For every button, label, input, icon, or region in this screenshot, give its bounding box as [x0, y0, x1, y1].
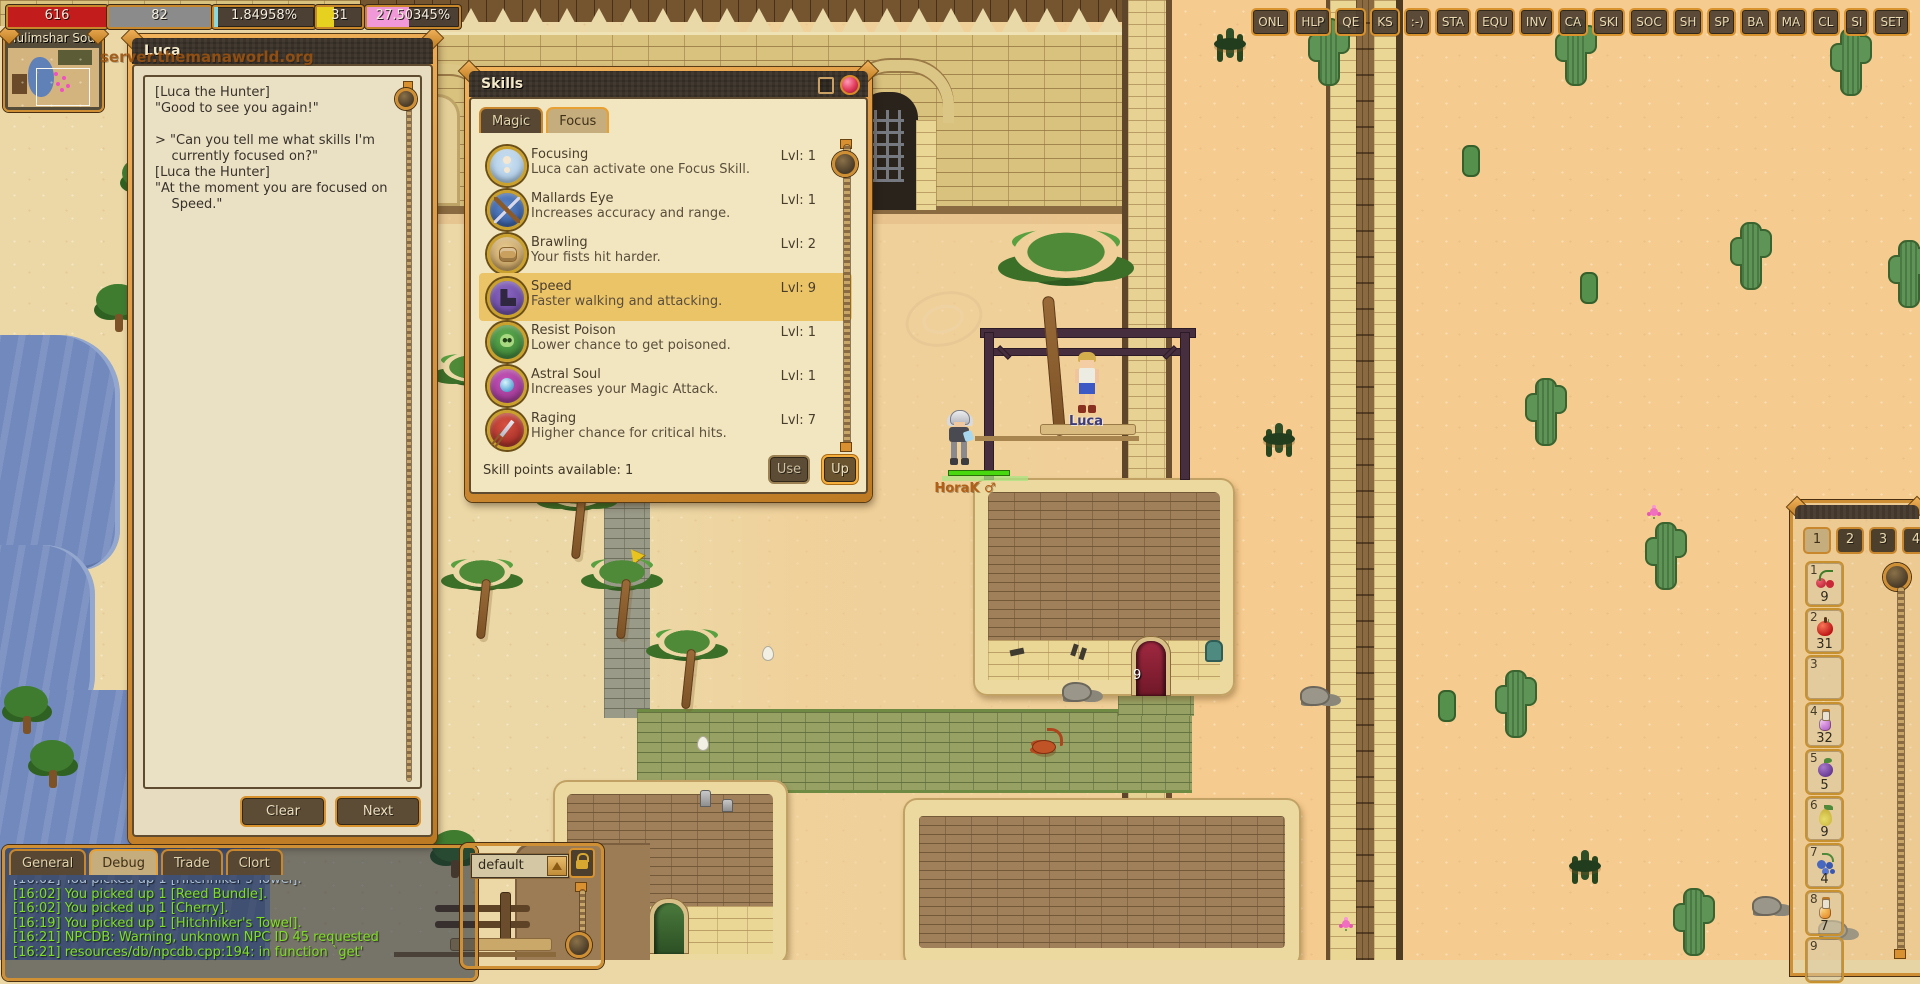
scorpion-monster[interactable] — [1030, 728, 1066, 756]
hp-bar-value: 616 — [8, 7, 106, 27]
resist-poison-icon — [487, 322, 527, 362]
npc-dialog-textarea[interactable]: [Luca the Hunter] "Good to see you again… — [143, 75, 422, 789]
dialog-clear-button[interactable]: Clear — [240, 796, 326, 827]
shortcut-slot-5[interactable]: 55 — [1805, 749, 1844, 795]
gate-jamb — [916, 120, 936, 210]
slot-count: 31 — [1807, 637, 1842, 652]
dropped-item[interactable] — [762, 646, 774, 661]
skill-level: Lvl: 7 — [781, 413, 816, 428]
skill-level: Lvl: 1 — [781, 149, 816, 164]
skill-description: Increases accuracy and range. — [531, 206, 850, 221]
potion-purple-icon — [1814, 711, 1836, 733]
skill-row-focusing[interactable]: FocusingLuca can activate one Focus Skil… — [481, 143, 850, 187]
battlement — [522, 8, 548, 32]
menu-button-ks[interactable]: KS — [1370, 8, 1400, 36]
skill-points-label: Skill points available: 1 — [483, 463, 633, 478]
npc-shirt — [1079, 368, 1095, 384]
cactus — [1898, 240, 1920, 308]
water — [0, 335, 120, 570]
chat-tab-general[interactable]: General — [9, 849, 86, 875]
emote-scrollbar-knob[interactable] — [566, 932, 592, 958]
small-cactus — [1438, 690, 1456, 722]
plum-icon — [1814, 758, 1836, 780]
menu-button-inv[interactable]: INV — [1519, 8, 1554, 36]
chimney-pipe — [700, 790, 711, 807]
skill-row-raging[interactable]: RagingHigher chance for critical hits.Lv… — [481, 407, 850, 451]
npc-dialog-text: [Luca the Hunter] "Good to see you again… — [145, 77, 420, 221]
causeway-stone — [1330, 0, 1356, 960]
causeway-stone — [1374, 0, 1396, 960]
berries-icon — [1814, 852, 1836, 874]
building-wall — [988, 640, 1220, 680]
skill-row-brawling[interactable]: BrawlingYour fists hit harder.Lvl: 2 — [481, 231, 850, 275]
mp-bar[interactable]: 82 — [107, 5, 212, 29]
player-sprite[interactable] — [944, 410, 974, 472]
tree — [26, 738, 80, 794]
skill-row-resist-poison[interactable]: Resist PoisonLower chance to get poisone… — [481, 319, 850, 363]
potion-orange-icon — [1814, 899, 1836, 921]
palm-fronds — [1014, 226, 1118, 278]
brawling-icon — [487, 234, 527, 274]
slot-number: 9 — [1810, 939, 1818, 953]
skill-description: Higher chance for critical hits. — [531, 426, 850, 441]
slot-number: 3 — [1810, 657, 1818, 671]
shortcut-window: 1234 192313432556974879 — [1790, 500, 1920, 976]
menu-button-equ[interactable]: EQU — [1475, 8, 1515, 36]
dropped-item[interactable] — [697, 736, 709, 751]
rocks — [1062, 682, 1092, 702]
cactus — [1740, 222, 1762, 290]
rocks — [1752, 896, 1782, 916]
skill-row-mallards-eye[interactable]: Mallards EyeIncreases accuracy and range… — [481, 187, 850, 231]
cactus — [1840, 28, 1862, 96]
minimap-structure — [58, 50, 92, 65]
npc-legs — [1080, 394, 1085, 405]
emote-dropdown-value: default — [478, 858, 524, 873]
battlement — [458, 8, 484, 32]
npc-luca-sprite[interactable] — [1074, 352, 1100, 416]
palm-tree — [650, 625, 726, 725]
slot-count: 5 — [1807, 778, 1842, 793]
chat-message: [16:19] You picked up 1 [Hitchhiker's To… — [13, 917, 471, 932]
menu-bar: ONLHLPQEKS:-)STAEQUINVCASKISOCSHSPBAMACL… — [1251, 8, 1910, 36]
menu-button-set[interactable]: SET — [1873, 8, 1910, 36]
menu-button-sta[interactable]: STA — [1435, 8, 1471, 36]
battlement — [1098, 8, 1124, 32]
building-roof — [919, 816, 1285, 948]
cactus — [1655, 522, 1677, 590]
hp-bar[interactable]: 616 — [6, 5, 108, 29]
player-towel — [963, 430, 975, 442]
battlement — [1002, 8, 1028, 32]
shortcut-scrollbar-end — [1894, 949, 1906, 959]
player-nametag: HoraK ♂ — [920, 481, 1010, 496]
skills-scrollbar-end — [840, 442, 852, 452]
shortcut-slot-7[interactable]: 74 — [1805, 843, 1844, 889]
battlement — [586, 8, 612, 32]
menu-button-ba[interactable]: BA — [1740, 8, 1770, 36]
causeway-edge — [1396, 0, 1403, 960]
shortcut-slot-2[interactable]: 231 — [1805, 608, 1844, 654]
shortcut-slot-6[interactable]: 69 — [1805, 796, 1844, 842]
shortcut-tab-1[interactable]: 1 — [1803, 527, 1831, 554]
battlement — [618, 8, 644, 32]
shortcut-slot-9[interactable]: 9 — [1805, 937, 1844, 983]
mallards-eye-icon — [487, 190, 527, 230]
shortcut-slot-8[interactable]: 87 — [1805, 890, 1844, 936]
menu-button-hlp[interactable]: HLP — [1294, 8, 1331, 36]
shortcut-tab-3[interactable]: 3 — [1869, 527, 1897, 554]
teal-plant — [1205, 640, 1223, 662]
mp-bar-value: 82 — [109, 7, 210, 27]
shortcut-tabs: 1234 — [1803, 527, 1920, 554]
sticky-icon[interactable] — [818, 77, 834, 94]
battlement — [490, 8, 516, 32]
menu-button-smiley[interactable]: :-) — [1404, 8, 1431, 36]
menu-button-ma[interactable]: MA — [1775, 8, 1808, 36]
minimap-window[interactable]: Tulimshar Sout — [3, 28, 104, 112]
skills-titlebar[interactable]: Skills — [469, 71, 868, 97]
small-cactus — [1580, 272, 1598, 304]
npc-dialog-body: [Luca the Hunter] "Good to see you again… — [132, 64, 433, 837]
minimap-canvas[interactable] — [8, 48, 99, 107]
shortcut-slot-4[interactable]: 432 — [1805, 702, 1844, 748]
lock-icon-body — [576, 860, 588, 869]
astral-soul-icon — [487, 366, 527, 406]
raging-icon — [487, 410, 527, 450]
lock-button[interactable] — [569, 848, 595, 878]
cherry-icon — [1814, 570, 1836, 592]
shortcut-tab-2[interactable]: 2 — [1836, 527, 1864, 554]
shortcut-titlebar[interactable] — [1795, 505, 1919, 519]
slot-count: 9 — [1807, 825, 1842, 840]
apple-icon — [1814, 617, 1836, 639]
chat-tab-debug[interactable]: Debug — [89, 849, 158, 875]
job-bar-value: 31 — [317, 7, 362, 27]
skill-level: Lvl: 1 — [781, 369, 816, 384]
cactus — [1535, 378, 1557, 446]
battlement — [842, 8, 868, 32]
menu-button-sh[interactable]: SH — [1673, 8, 1704, 36]
skill-use-button[interactable]: Use — [768, 455, 810, 484]
minimap-structure — [12, 74, 27, 94]
battlement — [714, 8, 740, 32]
palm-tree — [445, 555, 521, 655]
skills-scrollbar-knob[interactable] — [832, 151, 858, 177]
menu-button-ca[interactable]: CA — [1558, 8, 1589, 36]
green-door-inner — [654, 903, 684, 954]
pear-icon — [1814, 805, 1836, 827]
battlement — [810, 8, 836, 32]
slot-count: 4 — [1807, 872, 1842, 887]
agave-plant — [1262, 423, 1296, 453]
focusing-icon — [487, 146, 527, 186]
chat-message: [16:02] You picked up 1 [Reed Bundle]. — [13, 888, 471, 903]
menu-button-cl[interactable]: CL — [1811, 8, 1840, 36]
npc-nametag: Luca — [1046, 414, 1126, 429]
battlement — [970, 8, 996, 32]
cactus — [1683, 888, 1705, 956]
speed-icon — [487, 278, 527, 318]
small-cactus — [1462, 145, 1480, 177]
chat-message: [16:02] You picked up 1 [Cherry]. — [13, 902, 471, 917]
skills-body: MagicFocus FocusingLuca can activate one… — [469, 97, 868, 494]
chat-tab-trade[interactable]: Trade — [161, 849, 223, 875]
battlement — [682, 8, 708, 32]
pergola-beam — [980, 328, 1196, 338]
tab-focus[interactable]: Focus — [546, 107, 609, 133]
dialog-scrollbar-knob[interactable] — [395, 88, 417, 110]
dialog-next-button[interactable]: Next — [335, 796, 421, 827]
shortcut-slot-1[interactable]: 19 — [1805, 561, 1844, 607]
skills-scrollbar-track[interactable] — [844, 145, 850, 446]
battlement — [1066, 8, 1092, 32]
emote-dropdown[interactable]: default — [471, 854, 569, 878]
causeway-planks — [1356, 0, 1374, 960]
tab-magic[interactable]: Magic — [479, 107, 543, 133]
player-boots — [950, 458, 958, 465]
close-icon[interactable] — [840, 75, 860, 95]
pink-flower — [1342, 920, 1350, 928]
chat-message: [16:21] resources/db/npcdb.cpp:194: in f… — [13, 946, 471, 961]
chat-tab-clort[interactable]: Clort — [226, 849, 283, 875]
npc-boots — [1078, 405, 1086, 413]
skill-level: Lvl: 1 — [781, 325, 816, 340]
shortcut-scrollbar-track[interactable] — [1898, 587, 1904, 951]
weight-bar[interactable]: 27.50345% — [365, 5, 461, 29]
battlement — [554, 8, 580, 32]
chimney-pipe — [722, 799, 733, 812]
menu-button-si[interactable]: SI — [1844, 8, 1869, 36]
skills-title: Skills — [481, 76, 523, 92]
chat-tabs: GeneralDebugTradeClort — [9, 849, 286, 875]
dialog-scrollbar-track[interactable] — [407, 83, 411, 781]
battlement — [938, 8, 964, 32]
tree — [0, 684, 54, 740]
slot-count: 32 — [1807, 731, 1842, 746]
battlement — [874, 8, 900, 32]
exp-bar[interactable]: 1.84958% — [212, 5, 316, 29]
job-bar[interactable]: 31 — [315, 5, 364, 29]
battlement — [778, 8, 804, 32]
skill-level: Lvl: 2 — [781, 237, 816, 252]
emote-window: default — [460, 843, 604, 969]
menu-button-soc[interactable]: SOC — [1629, 8, 1668, 36]
pink-flower — [1650, 508, 1658, 516]
minimap-viewport — [36, 68, 90, 106]
skill-row-astral-soul[interactable]: Astral SoulIncreases your Magic Attack.L… — [481, 363, 850, 407]
menu-button-onl[interactable]: ONL — [1251, 8, 1290, 36]
shortcut-slot-3[interactable]: 3 — [1805, 655, 1844, 701]
battlement — [1034, 8, 1060, 32]
shortcut-tab-4[interactable]: 4 — [1902, 527, 1920, 554]
skill-description: Luca can activate one Focus Skill. — [531, 162, 850, 177]
agave-plant — [1568, 850, 1602, 880]
building-roof — [988, 492, 1220, 640]
skill-description: Lower chance to get poisoned. — [531, 338, 850, 353]
chat-window: GeneralDebugTradeClort [16:02] You picke… — [2, 845, 478, 981]
slot-count: 7 — [1807, 919, 1842, 934]
skill-level: Lvl: 1 — [781, 193, 816, 208]
shortcut-slots: 192313432556974879 — [1805, 561, 1844, 984]
battlement — [746, 8, 772, 32]
door-number: 9 — [1133, 668, 1141, 683]
chat-messages[interactable]: [16:02] You picked up 1 [Hitchhiker's To… — [13, 880, 471, 976]
chevron-up-icon — [552, 862, 562, 870]
skills-list: FocusingLuca can activate one Focus Skil… — [473, 143, 864, 451]
agave-plant — [1213, 28, 1247, 58]
pergola-post — [1180, 332, 1190, 480]
skills-tabs: MagicFocus — [479, 107, 612, 133]
menu-button-qe[interactable]: QE — [1335, 8, 1366, 36]
npc-shorts — [1079, 383, 1095, 394]
battlement — [650, 8, 676, 32]
pergola-post — [984, 332, 994, 480]
cactus — [1505, 670, 1527, 738]
npc-dialog-window: Luca [Luca the Hunter] "Good to see you … — [128, 34, 437, 845]
chat-message: [16:21] NPCDB: Warning, unknown NPC ID 4… — [13, 931, 471, 946]
skill-up-button[interactable]: Up — [822, 455, 858, 484]
rocks — [1300, 686, 1330, 706]
shortcut-scrollbar-knob[interactable] — [1883, 563, 1911, 591]
menu-button-ski[interactable]: SKI — [1592, 8, 1625, 36]
skill-description: Faster walking and attacking. — [531, 294, 850, 309]
battlement — [906, 8, 932, 32]
skill-description: Your fists hit harder. — [531, 250, 850, 265]
mossy-steps — [1118, 694, 1194, 716]
skill-level: Lvl: 9 — [781, 281, 816, 296]
wall-battlements — [360, 8, 1128, 34]
skill-description: Increases your Magic Attack. — [531, 382, 850, 397]
player-legs — [951, 442, 957, 458]
skill-row-speed[interactable]: SpeedFaster walking and attacking.Lvl: 9 — [481, 275, 850, 319]
skills-window: Skills MagicFocus FocusingLuca can activ… — [465, 67, 872, 502]
menu-button-sp[interactable]: SP — [1707, 8, 1736, 36]
slot-count: 9 — [1807, 590, 1842, 605]
dropdown-button[interactable] — [547, 856, 567, 876]
server-address-text: server.themanaworld.org — [100, 48, 314, 66]
weight-bar-value: 27.50345% — [367, 7, 459, 27]
exp-bar-value: 1.84958% — [214, 7, 314, 27]
